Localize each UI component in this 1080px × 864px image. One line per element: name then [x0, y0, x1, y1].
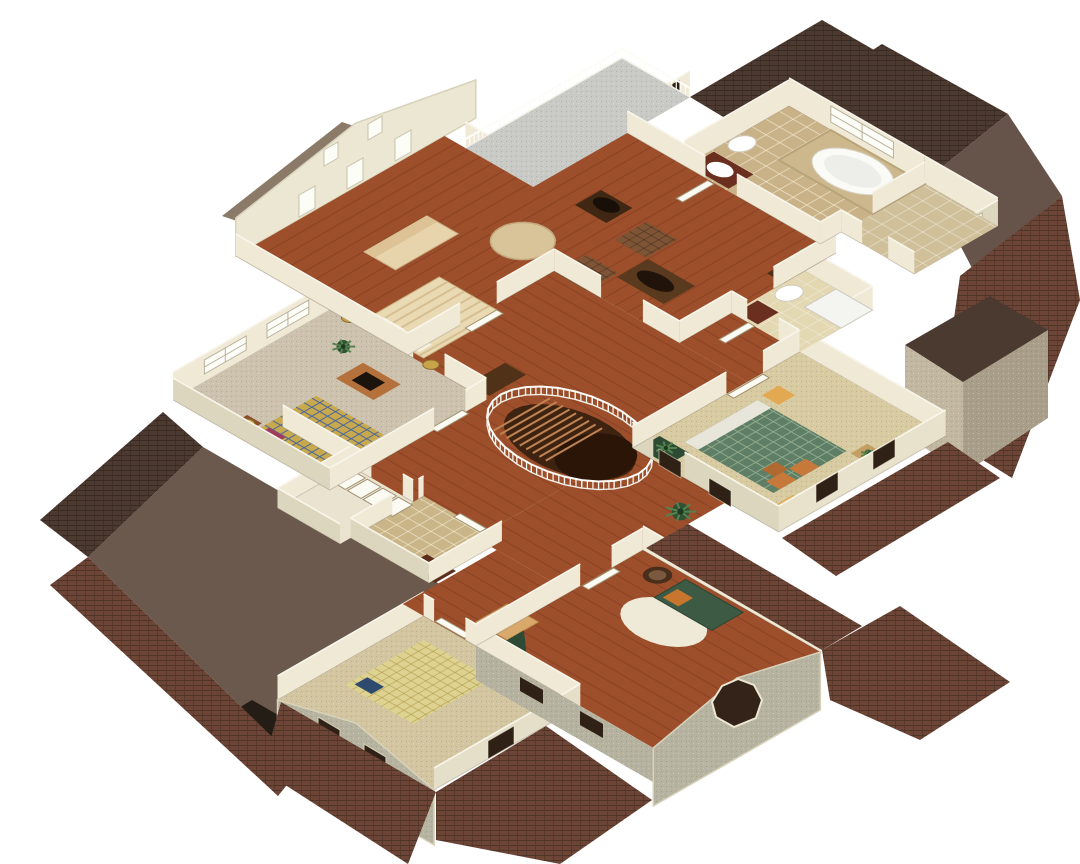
floorplan-3d-render — [0, 0, 1080, 864]
potted-plant-large-center — [677, 508, 683, 514]
floorplan-stage — [0, 0, 1080, 864]
render-root — [40, 20, 1080, 864]
potted-plant-center — [664, 446, 668, 450]
stove-top — [649, 570, 667, 580]
bedside-lamp — [423, 360, 439, 369]
potted-plant-center — [341, 344, 346, 349]
